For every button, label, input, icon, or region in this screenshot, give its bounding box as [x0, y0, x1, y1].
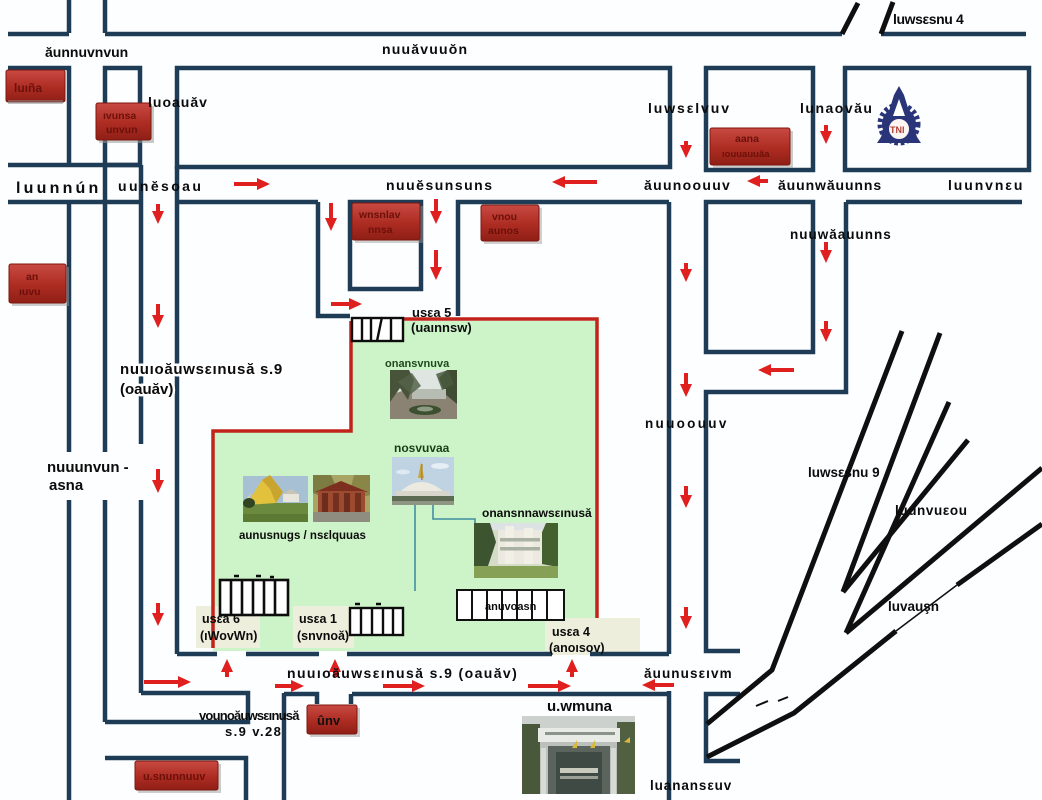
svg-text:ăuunoouuv: ăuunoouuv — [644, 177, 731, 193]
svg-text:u.wmuna: u.wmuna — [547, 698, 613, 715]
svg-text:onansnnawsεınusă: onansnnawsεınusă — [482, 506, 592, 520]
svg-text:ûnv: ûnv — [317, 713, 341, 728]
svg-text:nuuunvun -: nuuunvun - — [47, 459, 129, 476]
svg-text:uunĕsoau: uunĕsoau — [118, 178, 203, 194]
svg-text:ăuunwăuunns: ăuunwăuunns — [778, 177, 882, 193]
svg-text:asna: asna — [49, 477, 84, 494]
svg-text:usεa 1: usεa 1 — [299, 612, 337, 626]
svg-text:(snvnoă): (snvnoă) — [297, 629, 349, 643]
svg-text:luoauăv: luoauăv — [148, 94, 208, 110]
svg-text:nnsa: nnsa — [368, 224, 393, 236]
svg-text:nuuăvuuŏn: nuuăvuuŏn — [382, 41, 468, 57]
svg-text:luanansεuv: luanansεuv — [650, 778, 732, 793]
svg-text:aana: aana — [735, 133, 759, 145]
svg-text:luunnún: luunnún — [16, 180, 102, 197]
svg-text:anuvoasn: anuvoasn — [485, 601, 537, 613]
svg-text:usεa 6: usεa 6 — [202, 612, 240, 626]
svg-text:usεa 4: usεa 4 — [552, 625, 590, 639]
svg-text:vnou: vnou — [492, 211, 517, 223]
svg-text:u.snunnuuv: u.snunnuuv — [143, 771, 206, 783]
svg-text:nosvuvaa: nosvuvaa — [394, 441, 450, 455]
svg-text:lunaovău: lunaovău — [800, 100, 873, 116]
svg-text:s.9 v.28: s.9 v.28 — [225, 724, 282, 739]
svg-text:(ıWovWn): (ıWovWn) — [200, 629, 257, 643]
svg-text:luunvnεu: luunvnεu — [948, 177, 1024, 193]
svg-text:vounoăuwsεınusă: vounoăuwsεınusă — [199, 708, 300, 723]
svg-text:luwsεsnu 4: luwsεsnu 4 — [893, 11, 964, 27]
svg-text:ıuvu: ıuvu — [19, 286, 41, 298]
svg-text:(oauăv): (oauăv) — [120, 381, 173, 398]
svg-text:ăunnuvnvun: ăunnuvnvun — [45, 44, 128, 60]
svg-text:nuuoouuv: nuuoouuv — [645, 416, 729, 431]
svg-text:an: an — [26, 271, 38, 283]
svg-text:nuuĕsunsuns: nuuĕsunsuns — [386, 177, 494, 193]
svg-text:wnsnlav: wnsnlav — [358, 209, 401, 221]
svg-text:onansvnuva: onansvnuva — [385, 358, 450, 370]
svg-text:(anoısov): (anoısov) — [549, 641, 605, 655]
svg-text:(uaınnsw): (uaınnsw) — [411, 320, 472, 335]
svg-text:luıña: luıña — [14, 81, 42, 95]
svg-text:ıouuauuăa: ıouuauuăa — [722, 149, 770, 160]
svg-text:ăuunusεıvm: ăuunusεıvm — [644, 666, 733, 681]
svg-text:luwsεsnu 9: luwsεsnu 9 — [808, 465, 880, 480]
svg-text:luunvuεou: luunvuεou — [895, 503, 968, 518]
svg-text:nuuwăauunns: nuuwăauunns — [790, 227, 892, 242]
svg-text:usεa 5: usεa 5 — [412, 305, 451, 320]
svg-text:nuuıoăuwsεınusă s.9 (oauăv): nuuıoăuwsεınusă s.9 (oauăv) — [287, 665, 518, 681]
svg-text:TNI: TNI — [890, 125, 905, 135]
svg-text:luwsεlvuv: luwsεlvuv — [648, 100, 731, 116]
svg-text:nuuıoăuwsεınusă s.9: nuuıoăuwsεınusă s.9 — [120, 361, 283, 378]
svg-text:aunos: aunos — [488, 225, 519, 237]
svg-text:unvun: unvun — [106, 124, 138, 136]
svg-text:ıvunsa: ıvunsa — [103, 110, 136, 122]
svg-text:luvauşn: luvauşn — [888, 599, 939, 614]
svg-text:aunusnugs / nsεlquuas: aunusnugs / nsεlquuas — [239, 530, 366, 542]
